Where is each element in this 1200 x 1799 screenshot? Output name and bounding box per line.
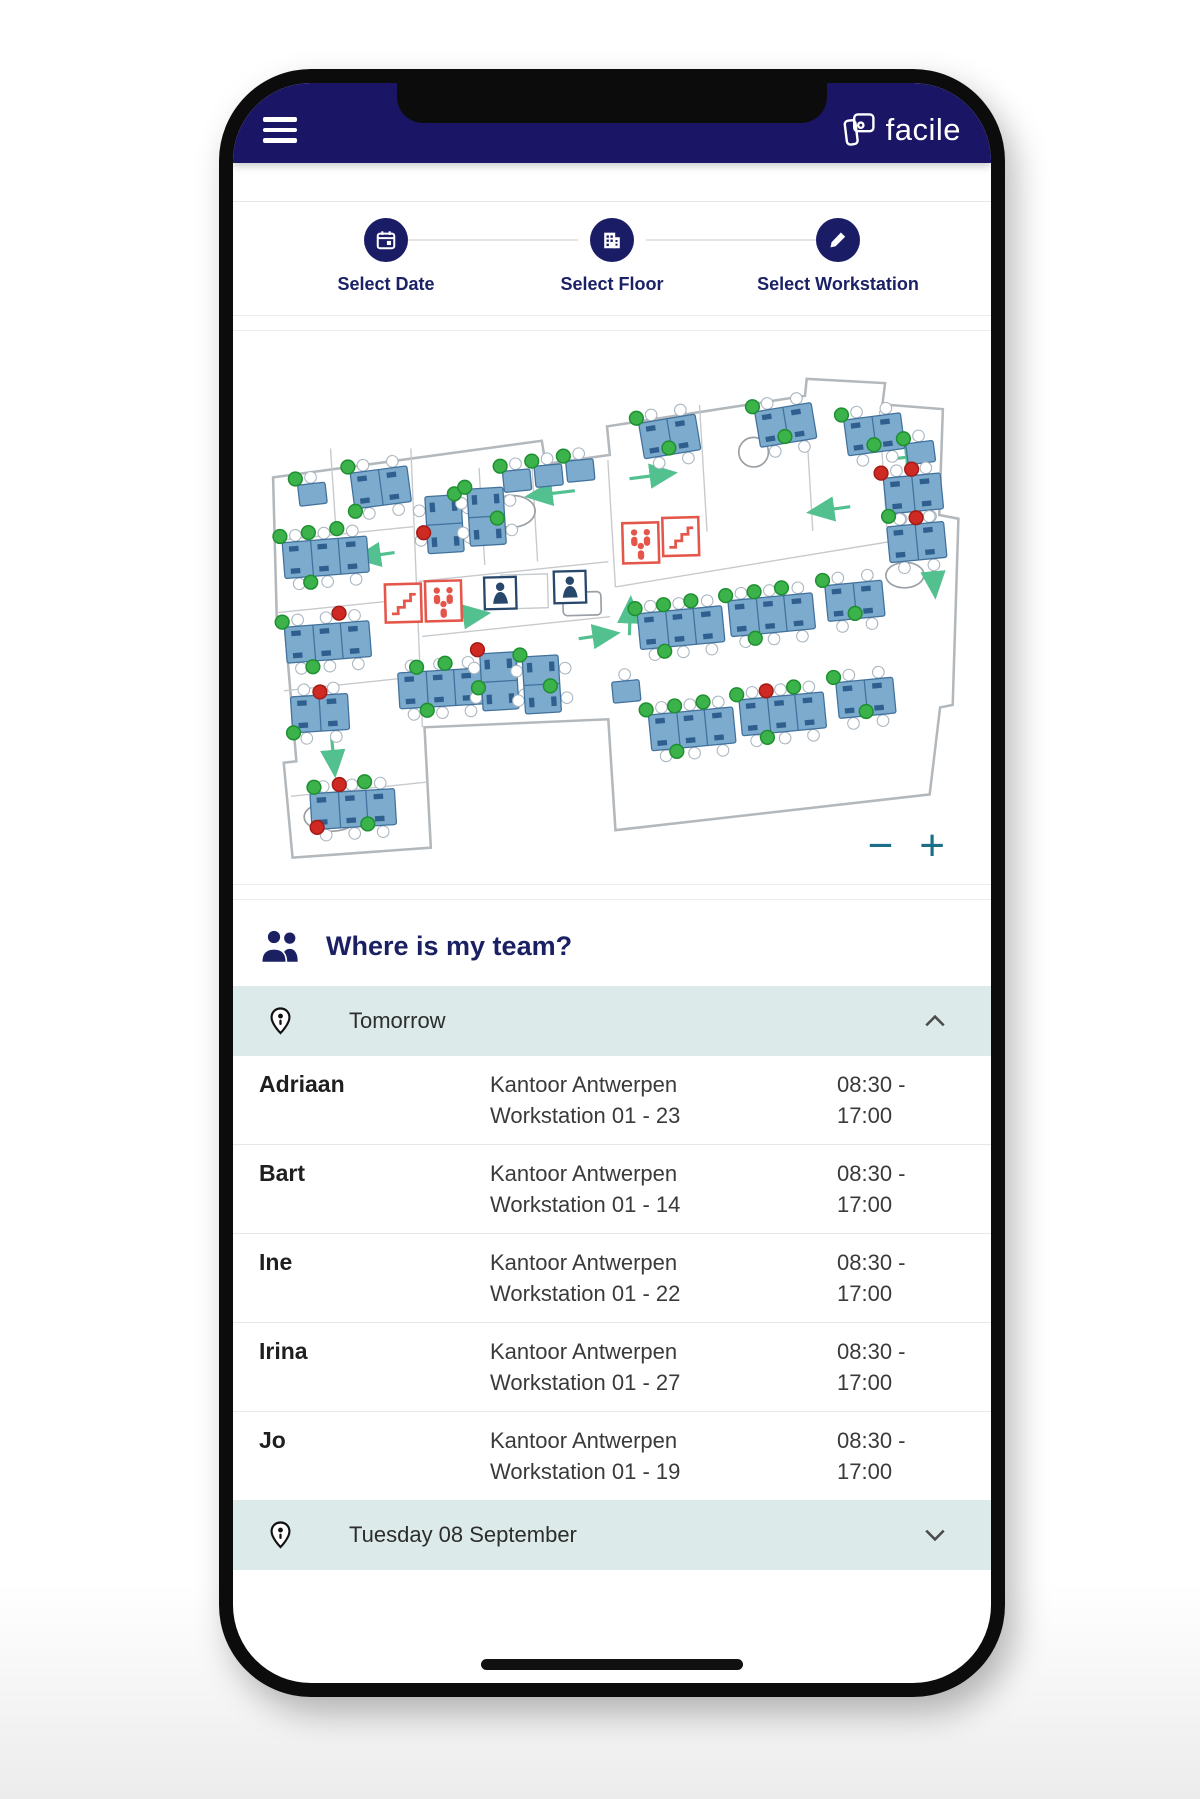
schedule-list: Adriaan Kantoor Antwerpen Workstation 01… <box>233 1056 991 1500</box>
row-workstation: Workstation 01 - 22 <box>490 1278 837 1309</box>
row-time-start: 08:30 - <box>837 1069 991 1100</box>
calendar-icon <box>375 229 397 251</box>
accordion-tomorrow[interactable]: Tomorrow <box>233 986 991 1056</box>
phone-notch <box>397 83 827 123</box>
step-connector <box>646 239 831 241</box>
row-workstation: Workstation 01 - 23 <box>490 1100 837 1131</box>
row-location: Kantoor Antwerpen <box>490 1069 837 1100</box>
team-section-header: Where is my team? <box>233 900 991 986</box>
row-name: Jo <box>259 1425 490 1487</box>
row-time-start: 08:30 - <box>837 1425 991 1456</box>
row-name: Bart <box>259 1158 490 1220</box>
team-icon <box>260 928 306 964</box>
step-label: Select Date <box>337 274 434 295</box>
row-workstation: Workstation 01 - 14 <box>490 1189 837 1220</box>
hamburger-icon <box>263 117 297 122</box>
row-workstation: Workstation 01 - 19 <box>490 1456 837 1487</box>
step-connector <box>393 239 578 241</box>
row-location: Kantoor Antwerpen <box>490 1336 837 1367</box>
step-label: Select Floor <box>560 274 663 295</box>
floor-plan-section: − + <box>233 331 991 884</box>
row-time-end: 17:00 <box>837 1367 991 1398</box>
step-select-workstation[interactable]: Select Workstation <box>725 218 951 295</box>
row-time-start: 08:30 - <box>837 1158 991 1189</box>
row-location: Kantoor Antwerpen <box>490 1425 837 1456</box>
double-divider <box>233 315 991 331</box>
brand-icon <box>841 112 877 148</box>
floor-icon <box>601 229 623 251</box>
row-location: Kantoor Antwerpen <box>490 1247 837 1278</box>
row-location: Kantoor Antwerpen <box>490 1158 837 1189</box>
menu-button[interactable] <box>263 114 303 146</box>
schedule-row[interactable]: Irina Kantoor Antwerpen Workstation 01 -… <box>233 1323 991 1412</box>
accordion-tuesday[interactable]: Tuesday 08 September <box>233 1500 991 1570</box>
chevron-down-icon <box>923 1527 947 1543</box>
phone-screen: facile <box>233 83 991 1683</box>
row-time-end: 17:00 <box>837 1189 991 1220</box>
double-divider <box>233 884 991 900</box>
row-time-start: 08:30 - <box>837 1336 991 1367</box>
row-name: Ine <box>259 1247 490 1309</box>
schedule-row[interactable]: Bart Kantoor Antwerpen Workstation 01 - … <box>233 1145 991 1234</box>
page: { "header": { "brand": "facile" }, "step… <box>0 0 1200 1799</box>
floor-plan[interactable] <box>261 365 963 870</box>
row-time-end: 17:00 <box>837 1100 991 1131</box>
step-label: Select Workstation <box>757 274 919 295</box>
location-pin-icon <box>268 1005 293 1037</box>
row-name: Adriaan <box>259 1069 490 1131</box>
row-time-start: 08:30 - <box>837 1247 991 1278</box>
step-select-date[interactable]: Select Date <box>273 218 499 295</box>
row-name: Irina <box>259 1336 490 1398</box>
accordion-label: Tuesday 08 September <box>349 1522 923 1548</box>
row-time-end: 17:00 <box>837 1278 991 1309</box>
schedule-row[interactable]: Adriaan Kantoor Antwerpen Workstation 01… <box>233 1056 991 1145</box>
pencil-icon <box>827 229 849 251</box>
zoom-controls: − + <box>868 824 945 868</box>
team-title: Where is my team? <box>326 931 572 962</box>
chevron-up-icon <box>923 1013 947 1029</box>
brand-logo: facile <box>841 112 961 148</box>
step-select-floor[interactable]: Select Floor <box>499 218 725 295</box>
location-pin-icon <box>268 1519 293 1551</box>
schedule-row[interactable]: Jo Kantoor Antwerpen Workstation 01 - 19… <box>233 1412 991 1500</box>
spacer <box>233 163 991 201</box>
accordion-label: Tomorrow <box>349 1008 923 1034</box>
zoom-in-button[interactable]: + <box>919 824 945 868</box>
phone-frame: facile <box>219 69 1005 1697</box>
brand-text: facile <box>886 112 961 148</box>
zoom-out-button[interactable]: − <box>868 824 894 868</box>
home-indicator <box>481 1659 743 1670</box>
row-workstation: Workstation 01 - 27 <box>490 1367 837 1398</box>
row-time-end: 17:00 <box>837 1456 991 1487</box>
schedule-row[interactable]: Ine Kantoor Antwerpen Workstation 01 - 2… <box>233 1234 991 1323</box>
stepper: Select Date Select Floor <box>233 202 991 315</box>
